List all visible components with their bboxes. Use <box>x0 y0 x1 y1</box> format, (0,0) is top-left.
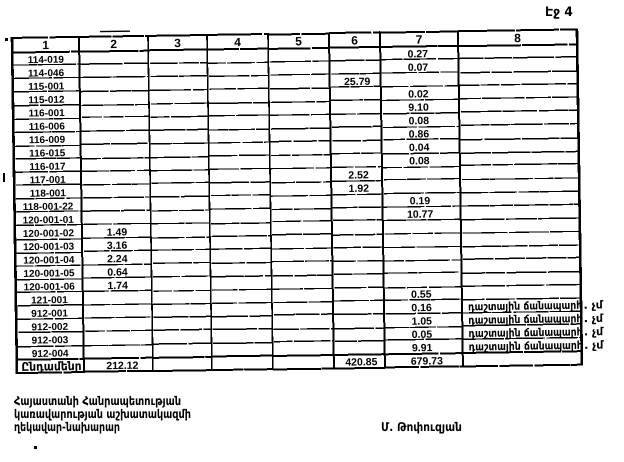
svg-text:7: 7 <box>416 33 423 47</box>
svg-text:120-001-01: 120-001-01 <box>23 215 75 227</box>
svg-text:0.05: 0.05 <box>412 329 433 341</box>
svg-text:679.73: 679.73 <box>411 355 443 367</box>
svg-text:25.79: 25.79 <box>344 76 371 88</box>
svg-text:0.55: 0.55 <box>411 289 432 301</box>
svg-text:3: 3 <box>174 36 181 50</box>
svg-text:4: 4 <box>234 35 241 49</box>
svg-text:1: 1 <box>42 38 49 52</box>
svg-text:0.27: 0.27 <box>407 48 428 60</box>
svg-text:0.04: 0.04 <box>409 142 430 154</box>
svg-text:116-009: 116-009 <box>29 135 66 147</box>
svg-text:120-001-03: 120-001-03 <box>23 241 75 253</box>
svg-text:8: 8 <box>514 31 521 45</box>
svg-text:0.07: 0.07 <box>408 62 429 74</box>
svg-text:120-001-06: 120-001-06 <box>24 282 76 294</box>
svg-text:120-001-05: 120-001-05 <box>23 268 75 280</box>
svg-text:10.77: 10.77 <box>407 208 434 220</box>
svg-text:9.10: 9.10 <box>408 102 429 114</box>
svg-text:1.74: 1.74 <box>107 280 128 292</box>
svg-text:120-001-02: 120-001-02 <box>23 228 75 240</box>
svg-text:0.19: 0.19 <box>410 195 431 207</box>
svg-text:912-003: 912-003 <box>32 335 69 347</box>
svg-text:2.24: 2.24 <box>107 253 128 265</box>
svg-text:2: 2 <box>110 37 117 51</box>
svg-text:0.86: 0.86 <box>409 128 430 140</box>
svg-text:114-019: 114-019 <box>28 55 65 67</box>
svg-text:120-001-04: 120-001-04 <box>23 255 75 267</box>
svg-text:6: 6 <box>351 33 358 47</box>
svg-text:0.02: 0.02 <box>408 88 429 100</box>
svg-text:1.92: 1.92 <box>348 183 369 195</box>
svg-text:116-017: 116-017 <box>29 162 66 174</box>
svg-text:0.08: 0.08 <box>408 115 429 127</box>
svg-text:1.49: 1.49 <box>107 226 128 238</box>
svg-text:115-001: 115-001 <box>28 81 65 93</box>
svg-text:118-001-22: 118-001-22 <box>23 201 74 213</box>
svg-text:0.08: 0.08 <box>409 155 430 167</box>
svg-text:0.64: 0.64 <box>107 266 128 278</box>
svg-text:117-001: 117-001 <box>29 175 66 187</box>
svg-text:116-001: 116-001 <box>28 108 65 120</box>
svg-text:115-012: 115-012 <box>28 95 65 107</box>
svg-text:121-001: 121-001 <box>31 295 68 307</box>
svg-text:212.12: 212.12 <box>106 360 138 372</box>
svg-text:9.91: 9.91 <box>412 342 433 354</box>
svg-text:118-001: 118-001 <box>30 188 67 200</box>
svg-text:116-015: 116-015 <box>29 148 66 160</box>
svg-text:3.16: 3.16 <box>107 240 128 252</box>
svg-text:912-004: 912-004 <box>32 348 69 360</box>
svg-text:420.85: 420.85 <box>345 356 377 368</box>
svg-text:0.16: 0.16 <box>411 302 432 314</box>
svg-text:1.05: 1.05 <box>411 315 432 327</box>
svg-text:912-002: 912-002 <box>31 322 68 334</box>
svg-text:114-046: 114-046 <box>28 68 65 80</box>
svg-text:2.52: 2.52 <box>348 169 369 181</box>
svg-text:116-006: 116-006 <box>29 121 66 133</box>
svg-text:912-001: 912-001 <box>31 308 68 320</box>
svg-text:5: 5 <box>295 34 302 48</box>
